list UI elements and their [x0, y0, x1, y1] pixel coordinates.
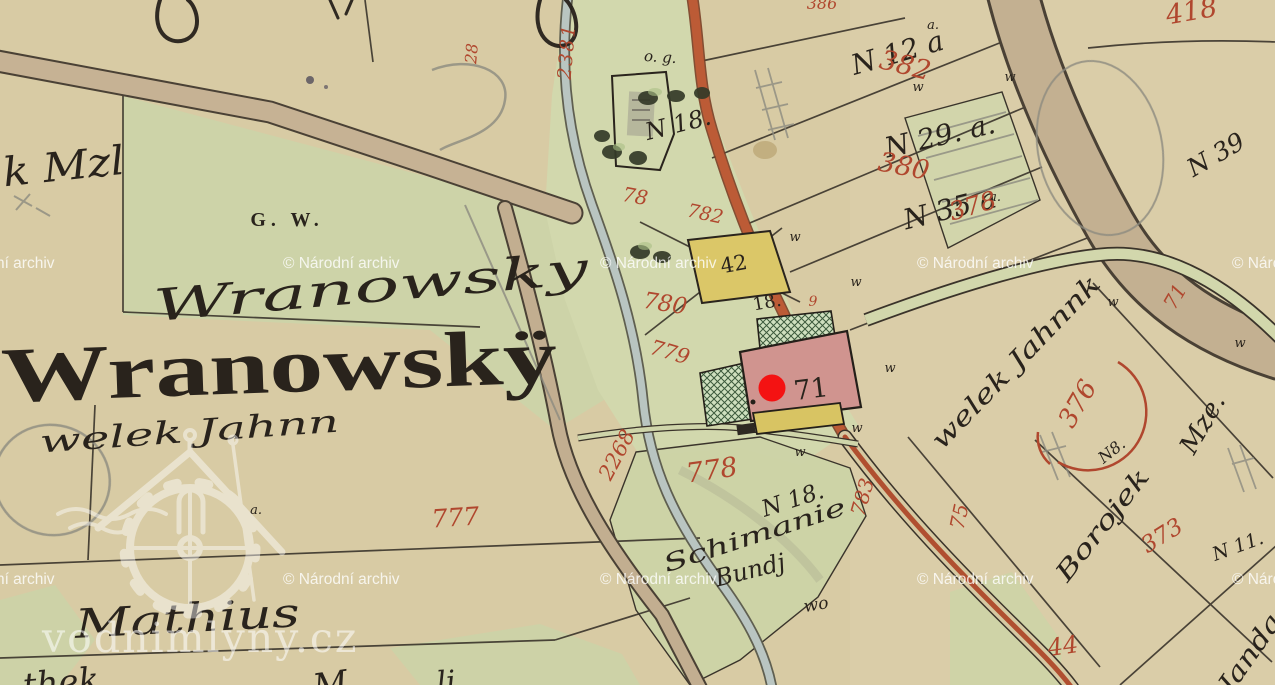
red-number-label-14: 78	[621, 182, 650, 210]
red-number-label-3: 386	[807, 0, 838, 13]
archive-watermark-0-0: © Národní archiv	[0, 255, 55, 272]
red-number-label-18: 777	[431, 501, 481, 533]
ink-label-7: M	[309, 663, 351, 685]
label-g-w: G. W.	[250, 209, 323, 231]
ink-label-34: w	[1004, 70, 1015, 85]
ink-label-8: li	[435, 664, 457, 685]
map-canvas[interactable]: WranowskÿWranowskyG. W.welek Jahnnk MzlM…	[0, 0, 1275, 685]
archive-watermark-0-4: © Národní archiv	[1232, 255, 1275, 272]
ink-label-29: w	[850, 275, 861, 290]
ink-label-36: w	[1107, 295, 1118, 310]
archive-watermark-1-4: © Národní archiv	[1232, 571, 1275, 588]
site-watermark: vodnimlyny.cz	[41, 614, 358, 662]
archive-watermark-1-0: © Národní archiv	[0, 571, 55, 588]
red-number-label-1: 28	[461, 43, 482, 66]
archive-watermark-0-2: © Národní archiv	[600, 255, 717, 272]
ink-label-9: o. g.	[643, 47, 677, 67]
site-marker-dot[interactable]	[759, 375, 786, 402]
ink-label-32: w	[794, 445, 805, 460]
ink-label-35: w	[1234, 336, 1245, 351]
ink-label-37: a.	[927, 18, 939, 33]
red-number-label-20: 9	[809, 294, 818, 310]
ink-label-15: 42	[719, 250, 749, 278]
ink-label-21: wo	[802, 593, 830, 617]
archive-watermark-0-3: © Národní archiv	[917, 255, 1034, 272]
red-number-label-12: 44	[1045, 630, 1080, 662]
house-number-71: 71	[792, 372, 830, 407]
archive-watermark-0-1: © Národní archiv	[283, 255, 400, 272]
ink-label-31: w	[851, 421, 862, 436]
ink-label-30: w	[884, 361, 895, 376]
archive-watermark-1-3: © Národní archiv	[917, 571, 1034, 588]
archive-watermark-1-1: © Národní archiv	[283, 571, 400, 588]
archive-watermark-1-2: © Národní archiv	[600, 571, 717, 588]
ink-label-28: w	[789, 230, 800, 245]
